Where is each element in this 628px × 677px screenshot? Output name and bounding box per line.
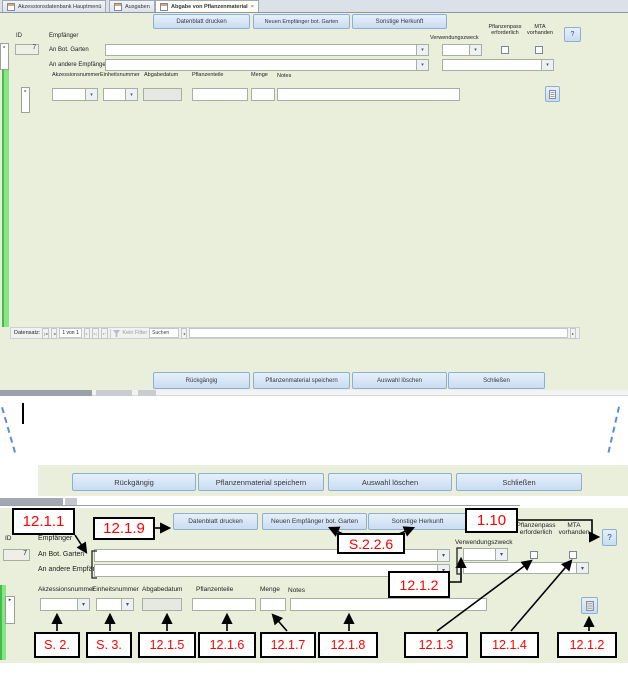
- auswahl-loeschen-button[interactable]: Auswahl löschen: [328, 473, 452, 491]
- previous-record-button[interactable]: ◂: [51, 328, 57, 339]
- callout-12-1-1: 12.1.1: [12, 508, 75, 535]
- annotated-screenshot: Datenblatt drucken Neuen Empfänger bot. …: [0, 497, 628, 668]
- column-einheitsnummer: Einheitsnummer: [100, 72, 140, 78]
- document-whitespace: [0, 396, 628, 462]
- pflanzenpass-label: Pflanzenpass erforderlich: [486, 24, 524, 36]
- id-label: ID: [5, 535, 12, 542]
- page: Akzessionsdatenbank Hauptmenü Ausgaben A…: [0, 0, 628, 677]
- id-label: ID: [16, 33, 22, 40]
- column-menge: Menge: [251, 72, 268, 78]
- an-andere-empfaenger-combo[interactable]: ▾: [105, 59, 429, 71]
- menge-field[interactable]: [260, 598, 286, 611]
- callout-1-10: 1.10: [465, 508, 518, 533]
- schliessen-button[interactable]: Schließen: [448, 372, 545, 389]
- chevron-down-icon[interactable]: ▾: [125, 89, 137, 100]
- id-field[interactable]: 7: [3, 549, 30, 561]
- callout-12-1-7: 12.1.7: [260, 632, 316, 658]
- pflanzenteile-field[interactable]: [192, 598, 256, 611]
- neuen-empfaenger-button[interactable]: Neuen Empfänger bot. Garten: [262, 513, 367, 530]
- column-einheitsnummer: Einheitsnummer: [92, 586, 139, 593]
- column-abgabedatum: Abgabedatum: [144, 72, 178, 78]
- close-icon[interactable]: ×: [251, 4, 254, 10]
- record-navigator: Datensatz: |◂ ◂ 1 von 1 ▸ ▸| ▸* Kein Fil…: [10, 327, 580, 339]
- filter-icon: [113, 330, 120, 337]
- tab-label: Abgabe von Pflanzenmaterial: [171, 4, 248, 10]
- scroll-left-button[interactable]: ◂: [181, 328, 187, 339]
- next-record-button[interactable]: ▸: [84, 328, 90, 339]
- verwendungszweck-combo[interactable]: ▾: [463, 548, 508, 561]
- new-record-button[interactable]: ▸*: [101, 328, 109, 339]
- callout-s-2: S. 2.: [34, 632, 80, 658]
- help-button[interactable]: ?: [602, 529, 617, 546]
- an-andere-empfaenger-label: An andere Empfänger: [49, 62, 108, 69]
- tab-hauptmenu[interactable]: Akzessionsdatenbank Hauptmenü: [2, 0, 106, 12]
- pflanzenpass-checkbox[interactable]: [501, 46, 509, 54]
- column-akzessionsnummer: Akzessionsnummer: [52, 72, 100, 78]
- record-selector-bar: [2, 57, 9, 327]
- menge-field[interactable]: [251, 88, 275, 101]
- column-notes: Notes: [288, 587, 305, 594]
- einheitsnummer-combo[interactable]: ▾: [103, 88, 138, 101]
- record-position-field[interactable]: 1 von 1: [59, 328, 81, 338]
- verwendungszweck-combo-2[interactable]: ▾: [463, 562, 589, 574]
- tab-bar: Akzessionsdatenbank Hauptmenü Ausgaben A…: [0, 0, 628, 13]
- auswahl-loeschen-button[interactable]: Auswahl löschen: [352, 372, 447, 389]
- tab-label: Akzessionsdatenbank Hauptmenü: [18, 4, 101, 10]
- callout-12-1-9: 12.1.9: [93, 517, 155, 540]
- callout-12-1-5: 12.1.5: [138, 632, 196, 658]
- last-record-button[interactable]: ▸|: [92, 328, 99, 339]
- rueckgaengig-button[interactable]: Rückgängig: [153, 372, 250, 389]
- verwendungszweck-combo[interactable]: ▾: [442, 44, 482, 56]
- tab-label: Ausgaben: [125, 4, 150, 10]
- column-pflanzenteile: Pflanzenteile: [196, 586, 233, 593]
- pflanzenmaterial-speichern-button[interactable]: Pflanzenmaterial speichern: [198, 473, 324, 491]
- text-cursor: [22, 403, 24, 424]
- verwendungszweck-combo-2[interactable]: ▾: [442, 59, 554, 71]
- pflanzenmaterial-speichern-button[interactable]: Pflanzenmaterial speichern: [253, 372, 350, 389]
- footer-buttons-crop: Rückgängig Pflanzenmaterial speichern Au…: [0, 462, 628, 497]
- chevron-down-icon[interactable]: ▾: [495, 549, 507, 560]
- schliessen-button[interactable]: Schließen: [456, 473, 582, 491]
- callout-12-1-2-bottom: 12.1.2: [557, 632, 617, 658]
- divider: [110, 329, 111, 338]
- callout-s-2-2-6: S.2.2.6: [337, 533, 405, 554]
- einheitsnummer-combo[interactable]: ▾: [96, 598, 134, 611]
- row-action-button[interactable]: [581, 597, 598, 614]
- form-icon: [160, 3, 168, 11]
- row-action-button[interactable]: [545, 86, 560, 102]
- record-arrow-icon: ▸: [3, 44, 5, 49]
- mta-label: MTA vorhanden: [524, 24, 556, 36]
- an-bot-garten-label: An Bot. Garten: [49, 47, 89, 54]
- mta-label: MTA vorhanden: [553, 522, 595, 536]
- access-window-screenshot: Akzessionsdatenbank Hauptmenü Ausgaben A…: [0, 0, 628, 396]
- chevron-down-icon[interactable]: ▾: [416, 60, 428, 70]
- record-arrow-icon: ▸: [24, 88, 26, 93]
- mta-checkbox[interactable]: [535, 46, 543, 54]
- chevron-down-icon[interactable]: ▾: [576, 563, 588, 573]
- column-akzessionsnummer: Akzessionsnummer: [38, 586, 95, 593]
- verwendungszweck-label: Verwendungszweck: [430, 35, 479, 41]
- callout-12-1-6: 12.1.6: [198, 632, 256, 658]
- callout-s-3: S. 3.: [86, 632, 132, 658]
- first-record-button[interactable]: |◂: [42, 328, 49, 339]
- column-menge: Menge: [260, 586, 280, 593]
- callout-12-1-2-top: 12.1.2: [388, 571, 450, 598]
- chevron-down-icon[interactable]: ▾: [77, 599, 89, 610]
- document-icon: [549, 90, 556, 99]
- chevron-down-icon[interactable]: ▾: [541, 60, 553, 70]
- tab-abgabe-von-pflanzenmaterial[interactable]: Abgabe von Pflanzenmaterial ×: [155, 0, 259, 12]
- akzessionsnummer-combo[interactable]: ▾: [52, 88, 98, 101]
- empfaenger-label: Empfänger: [38, 535, 72, 543]
- callout-12-1-3: 12.1.3: [404, 632, 468, 658]
- form-icon: [7, 3, 15, 11]
- pflanzenteile-field[interactable]: [192, 88, 248, 101]
- row-record-selector[interactable]: ▸: [5, 596, 15, 624]
- abgabedatum-field[interactable]: [143, 88, 182, 101]
- akzessionsnummer-combo[interactable]: ▾: [40, 598, 90, 611]
- row-record-selector[interactable]: ▸: [21, 87, 30, 113]
- scroll-right-button[interactable]: ▸: [570, 328, 576, 339]
- sonstige-herkunft-button[interactable]: Sonstige Herkunft: [352, 14, 447, 29]
- help-button[interactable]: ?: [564, 27, 581, 42]
- an-bot-garten-combo[interactable]: ▾: [105, 44, 429, 56]
- chevron-down-icon[interactable]: ▾: [121, 599, 133, 610]
- form-icon: [114, 3, 122, 11]
- divider: [0, 505, 520, 506]
- chevron-down-icon[interactable]: ▾: [85, 89, 97, 100]
- column-abgabedatum: Abgabedatum: [142, 586, 182, 593]
- record-arrow-icon: ▸: [9, 597, 12, 603]
- abgabedatum-field[interactable]: [142, 598, 182, 611]
- chevron-down-icon[interactable]: ▾: [469, 45, 481, 55]
- callout-12-1-4: 12.1.4: [480, 632, 539, 658]
- pflanzenpass-label: Pflanzenpass erforderlich: [514, 522, 558, 536]
- neuen-empfaenger-button[interactable]: Neuen Empfänger bot. Garten: [253, 14, 350, 29]
- notes-field[interactable]: [277, 88, 460, 101]
- empfaenger-label: Empfänger: [49, 33, 78, 40]
- record-selector-box[interactable]: ▸: [0, 43, 9, 70]
- crop-mark-right: [607, 407, 620, 453]
- an-bot-garten-label: An Bot. Garten: [38, 551, 84, 559]
- tab-ausgaben[interactable]: Ausgaben: [109, 0, 155, 12]
- datenblatt-drucken-button[interactable]: Datenblatt drucken: [173, 513, 258, 530]
- document-icon: [586, 601, 594, 611]
- datenblatt-drucken-button[interactable]: Datenblatt drucken: [153, 14, 250, 29]
- pflanzenpass-checkbox[interactable]: [530, 551, 538, 559]
- mta-checkbox[interactable]: [569, 551, 577, 559]
- callout-12-1-8: 12.1.8: [318, 632, 378, 658]
- search-input[interactable]: Suchen: [149, 328, 179, 338]
- notes-field[interactable]: [290, 598, 487, 611]
- crop-mark-left: [1, 407, 16, 453]
- column-notes: Notes: [277, 73, 291, 79]
- navigator-label: Datensatz:: [14, 330, 40, 336]
- sonstige-herkunft-button[interactable]: Sonstige Herkunft: [368, 513, 467, 530]
- verwendungszweck-label: Verwendungszweck: [455, 539, 512, 546]
- horizontal-scrollbar[interactable]: [189, 328, 568, 338]
- id-field[interactable]: 7: [15, 44, 39, 55]
- column-pflanzenteile: Pflanzenteile: [192, 72, 224, 78]
- chevron-down-icon[interactable]: ▾: [416, 45, 428, 55]
- rueckgaengig-button[interactable]: Rückgängig: [72, 473, 196, 491]
- chevron-down-icon[interactable]: ▾: [437, 550, 449, 561]
- filter-state-button[interactable]: Kein Filter: [122, 330, 147, 336]
